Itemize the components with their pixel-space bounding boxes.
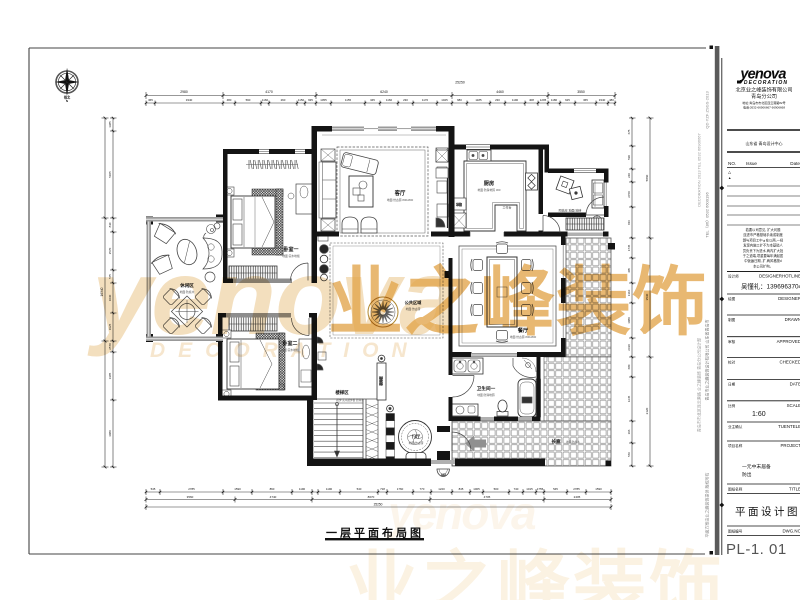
svg-text:345: 345 <box>370 98 375 102</box>
svg-text:yenova: yenova <box>386 487 536 539</box>
svg-text:718: 718 <box>380 487 385 491</box>
svg-text:阿姨房 地面:地砖: 阿姨房 地面:地砖 <box>559 208 582 213</box>
svg-text:830: 830 <box>108 222 112 227</box>
svg-text:本公司扩构。: 本公司扩构。 <box>753 263 773 268</box>
svg-text:地面:仿古砖: 地面:仿古砖 <box>409 441 424 445</box>
svg-text:N: N <box>66 99 68 103</box>
svg-text:846: 846 <box>627 220 631 225</box>
svg-text:8670: 8670 <box>368 495 375 499</box>
svg-text:1385: 1385 <box>108 121 112 128</box>
svg-text:1590: 1590 <box>234 487 241 491</box>
svg-text:545: 545 <box>553 487 558 491</box>
svg-text:长廊: 长廊 <box>551 438 561 445</box>
svg-text:TUENTELE: TUENTELE <box>778 424 800 429</box>
svg-text:DESIGNERHOTLINE: DESIGNERHOTLINE <box>759 274 800 279</box>
svg-text:408: 408 <box>529 98 534 102</box>
svg-text:230: 230 <box>403 98 408 102</box>
svg-text:CHECKED: CHECKED <box>780 360 800 365</box>
svg-text:675: 675 <box>627 129 631 134</box>
svg-text:2120: 2120 <box>645 407 649 414</box>
svg-text:日期: 日期 <box>728 382 736 387</box>
svg-text:230: 230 <box>495 98 500 102</box>
svg-text:1170: 1170 <box>422 98 429 102</box>
svg-text:审核: 审核 <box>728 339 736 344</box>
svg-text:TEL（86）0532 6600196: TEL（86）0532 6600196 <box>705 192 710 238</box>
svg-text:480: 480 <box>227 98 232 102</box>
svg-text:1180: 1180 <box>551 98 558 102</box>
svg-text:3340: 3340 <box>599 98 606 102</box>
svg-text:DECORATION: DECORATION <box>744 80 788 86</box>
svg-text:1:60: 1:60 <box>752 411 766 418</box>
svg-text:DWG.NO: DWG.NO <box>782 529 800 534</box>
svg-text:590: 590 <box>246 98 251 102</box>
svg-text:Date: Date <box>790 161 800 166</box>
svg-text:2980: 2980 <box>180 90 188 94</box>
svg-text:2785: 2785 <box>573 487 580 491</box>
svg-text:项目名称: 项目名称 <box>728 443 743 448</box>
svg-text:540: 540 <box>357 487 362 491</box>
svg-text:校对: 校对 <box>728 360 736 365</box>
svg-text:3340: 3340 <box>186 98 193 102</box>
svg-text:1055: 1055 <box>320 98 327 102</box>
svg-text:冰箱: 冰箱 <box>456 203 462 207</box>
svg-text:3550: 3550 <box>577 90 585 94</box>
svg-text:2785: 2785 <box>188 487 195 491</box>
svg-text:1245: 1245 <box>627 395 631 402</box>
svg-text:1160: 1160 <box>262 98 269 102</box>
svg-text:Issue: Issue <box>746 161 757 166</box>
svg-text:APPROVED: APPROVED <box>777 339 800 344</box>
svg-text:NO.: NO. <box>728 161 736 166</box>
svg-text:比例: 比例 <box>728 403 736 408</box>
svg-text:365: 365 <box>583 98 588 102</box>
svg-text:吴懂礼：13969637041: 吴懂礼：13969637041 <box>741 282 800 291</box>
svg-text:SCALE: SCALE <box>787 403 800 408</box>
svg-text:地面:防滑地砖 300: 地面:防滑地砖 300 <box>477 188 500 192</box>
svg-text:590: 590 <box>627 155 631 160</box>
svg-text:入口: 入口 <box>441 473 446 477</box>
svg-text:业之峰装饰: 业之峰装饰 <box>345 545 725 600</box>
svg-text:1590: 1590 <box>595 487 602 491</box>
svg-text:业之峰装饰: 业之峰装饰 <box>328 260 708 344</box>
svg-text:1160: 1160 <box>386 98 393 102</box>
svg-text:连进市严格基础手续或制度: 连进市严格基础手续或制度 <box>743 232 783 237</box>
svg-text:PL-1. 01: PL-1. 01 <box>726 541 787 558</box>
svg-text:一元中末居备: 一元中末居备 <box>742 463 771 470</box>
svg-text:DECORATION 2013 TEL 0532 66906: DECORATION 2013 TEL 0532 66906667 <box>697 132 702 206</box>
svg-text:25250: 25250 <box>455 81 465 85</box>
svg-text:4170: 4170 <box>265 90 273 94</box>
svg-text:防出: 防出 <box>742 471 752 478</box>
svg-text:山东省 青岛设计中心: 山东省 青岛设计中心 <box>745 140 782 146</box>
svg-text:6240: 6240 <box>380 90 388 94</box>
svg-text:4460: 4460 <box>496 90 504 94</box>
svg-text:电话:0532-66906667 66906668: 电话:0532-66906667 66906668 <box>743 105 785 110</box>
svg-text:中饭遍日期, 扩,两风格按d: 中饭遍日期, 扩,两风格按d <box>744 258 782 263</box>
svg-text:5965: 5965 <box>108 171 112 178</box>
svg-text:260: 260 <box>281 98 286 102</box>
svg-text:图纸编号: 图纸编号 <box>728 529 743 534</box>
svg-text:TITLE: TITLE <box>789 487 800 492</box>
svg-text:1185: 1185 <box>475 98 482 102</box>
svg-text:1025: 1025 <box>441 98 448 102</box>
svg-text:平面设计图: 平面设计图 <box>735 505 800 518</box>
svg-text:颁与项目工中▲在以两,一经: 颁与项目工中▲在以两,一经 <box>743 237 784 242</box>
svg-text:员负责下为进水,两内扩大批: 员负责下为进水,两内扩大批 <box>743 248 784 253</box>
svg-text:625: 625 <box>565 98 570 102</box>
svg-text:545: 545 <box>151 487 156 491</box>
svg-text:1755: 1755 <box>537 487 544 491</box>
svg-text:1155: 1155 <box>345 98 352 102</box>
svg-text:地址:青岛市市北区连云港路82号: 地址:青岛市市北区连云港路82号 <box>742 100 785 105</box>
svg-text:25250: 25250 <box>374 503 383 507</box>
svg-text:装饰柜: 装饰柜 <box>378 376 383 385</box>
svg-text:工作台: 工作台 <box>502 205 511 210</box>
svg-text:门厅: 门厅 <box>412 433 421 440</box>
svg-text:青岛市市北区连云港路 业之峰装饰 青岛分公司设计部: 青岛市市北区连云港路 业之峰装饰 青岛分公司设计部 <box>696 338 702 432</box>
svg-text:制图: 制图 <box>728 317 736 322</box>
svg-text:680: 680 <box>457 98 462 102</box>
svg-text:566: 566 <box>627 452 631 457</box>
svg-text:地面:防腐木: 地面:防腐木 <box>566 440 580 444</box>
svg-text:北京业之峰装饰有限公司: 北京业之峰装饰有限公司 <box>735 86 792 94</box>
svg-text:图纸名称: 图纸名称 <box>728 487 743 492</box>
svg-text:2405: 2405 <box>574 495 581 499</box>
svg-text:1190: 1190 <box>299 487 306 491</box>
svg-text:1190: 1190 <box>512 98 519 102</box>
svg-text:196: 196 <box>627 429 631 434</box>
svg-text:3385: 3385 <box>108 372 112 379</box>
svg-text:3080: 3080 <box>108 430 112 437</box>
svg-text:地面:防滑地砖: 地面:防滑地砖 <box>477 393 495 397</box>
svg-text:3560: 3560 <box>187 495 194 499</box>
svg-text:青岛分公司: 青岛分公司 <box>751 92 777 100</box>
svg-text:DESIGNER: DESIGNER <box>778 296 800 301</box>
svg-text:若要以司意见, 扩大问题: 若要以司意见, 扩大问题 <box>746 227 782 232</box>
svg-text:客厅: 客厅 <box>395 189 406 197</box>
svg-text:QD·YZF·ZSGS·2013: QD·YZF·ZSGS·2013 <box>705 91 710 129</box>
svg-text:于之道端,项重要每年满起居: 于之道端,项重要每年满起居 <box>743 253 784 258</box>
svg-text:365: 365 <box>148 98 153 102</box>
svg-text:地面:仿古砖 800x800: 地面:仿古砖 800x800 <box>387 198 414 202</box>
svg-text:卫生间一: 卫生间一 <box>477 385 496 392</box>
svg-text:绘图: 绘图 <box>728 296 736 301</box>
svg-text:2760: 2760 <box>627 191 631 198</box>
svg-text:业主确认: 业主确认 <box>728 424 743 429</box>
svg-text:4740: 4740 <box>270 495 277 499</box>
svg-text:5860: 5860 <box>645 174 649 181</box>
svg-text:DRAWN: DRAWN <box>785 317 800 322</box>
svg-text:2430: 2430 <box>627 344 631 351</box>
svg-text:设计师: 设计师 <box>728 274 739 279</box>
svg-text:860: 860 <box>270 487 275 491</box>
svg-text:DATE: DATE <box>790 382 800 387</box>
svg-text:1190: 1190 <box>326 487 333 491</box>
svg-text:发现内施工扩不为本基础人: 发现内施工扩不为本基础人 <box>743 243 783 248</box>
svg-text:680: 680 <box>627 364 631 369</box>
svg-text:240: 240 <box>627 173 631 178</box>
svg-text:935: 935 <box>308 98 313 102</box>
svg-text:楼梯区: 楼梯区 <box>335 389 349 396</box>
svg-text:1745: 1745 <box>627 244 631 251</box>
svg-text:1150: 1150 <box>298 98 305 102</box>
svg-text:PROJECT: PROJECT <box>781 443 800 448</box>
svg-text:▲: ▲ <box>728 176 731 180</box>
svg-text:厨房: 厨房 <box>484 179 494 187</box>
svg-text:踏步:实木踏步板 防滑条: 踏步:实木踏步板 防滑条 <box>336 398 364 402</box>
svg-text:1295: 1295 <box>540 98 547 102</box>
svg-text:平面方案由业之峰装饰提供 版权所有: 平面方案由业之峰装饰提供 版权所有 <box>704 472 710 537</box>
svg-text:480: 480 <box>609 98 614 102</box>
